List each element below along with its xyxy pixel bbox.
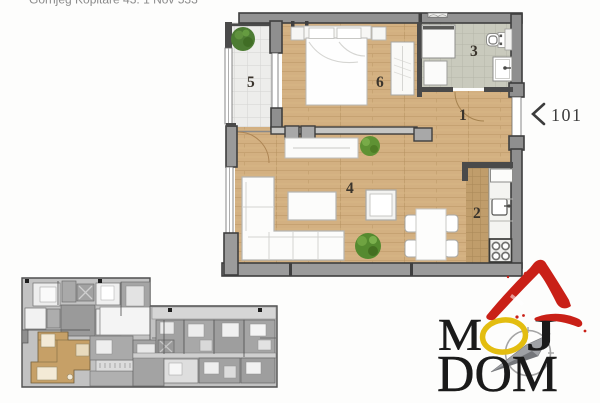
svg-text:6: 6 — [376, 74, 384, 91]
svg-text:2: 2 — [473, 205, 481, 222]
svg-text:4: 4 — [346, 180, 354, 197]
svg-text:Gornjeg Kopitare 43. 1 Nov 533: Gornjeg Kopitare 43. 1 Nov 533 — [29, 0, 198, 7]
svg-text:101: 101 — [551, 105, 583, 125]
svg-text:DOM: DOM — [437, 346, 558, 403]
svg-text:1: 1 — [459, 107, 467, 124]
svg-text:5: 5 — [247, 74, 255, 91]
svg-text:3: 3 — [470, 43, 478, 60]
